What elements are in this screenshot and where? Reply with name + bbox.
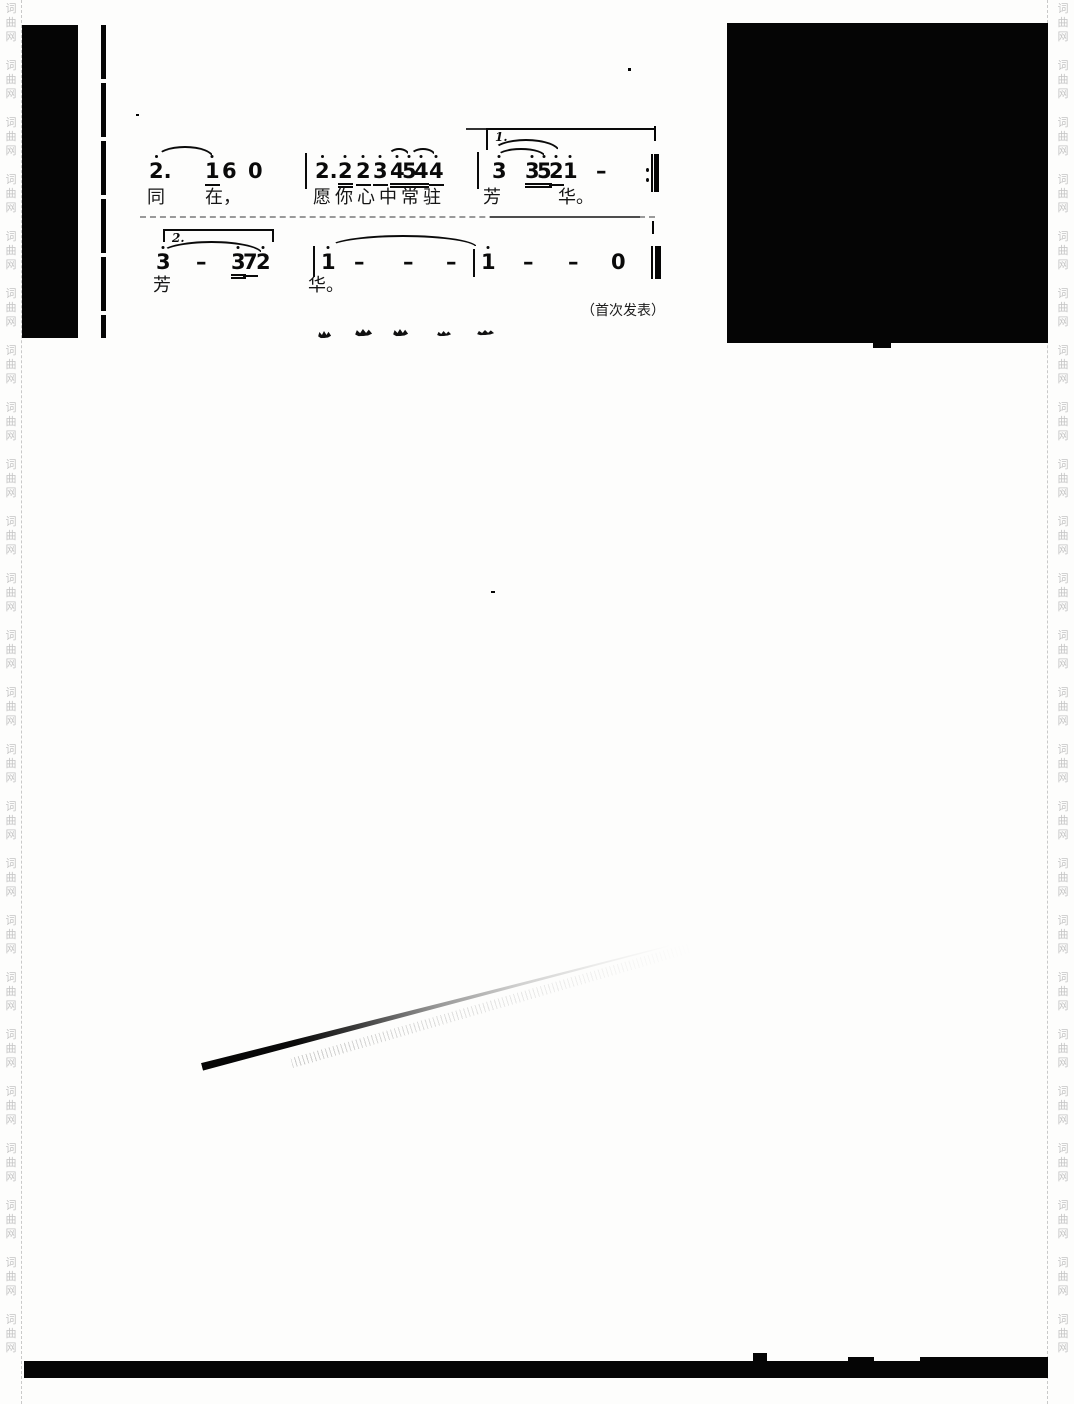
- slur-arc: [328, 235, 478, 248]
- watermark-char: 网: [1058, 1170, 1069, 1184]
- watermark-char: 词: [1058, 1028, 1069, 1042]
- final-barline-thin: [651, 154, 653, 192]
- jianpu-note: 1: [481, 252, 496, 273]
- barline: [305, 153, 307, 189]
- watermark-char: 网: [1058, 315, 1069, 329]
- note-digit: 2: [338, 161, 353, 188]
- watermark-char: 词: [1058, 857, 1069, 871]
- note-digit: –: [196, 252, 207, 273]
- watermark-char: 词: [1058, 2, 1069, 16]
- watermark-char: 曲: [6, 586, 17, 600]
- jianpu-note: –: [446, 252, 457, 273]
- watermark-char: 曲: [1058, 871, 1069, 885]
- watermark-char: 词: [1058, 458, 1069, 472]
- note-digit: 2: [356, 161, 371, 186]
- watermark-char: 网: [6, 1227, 17, 1241]
- watermark-char: 网: [1058, 942, 1069, 956]
- watermark-char: 词: [1058, 1313, 1069, 1327]
- watermark-char: 曲: [6, 358, 17, 372]
- watermark-char: 曲: [6, 928, 17, 942]
- watermark-char: 词: [6, 743, 17, 757]
- octave-dot: [487, 246, 490, 249]
- watermark-char: 网: [6, 1056, 17, 1070]
- diagonal-scratch-streak: [201, 941, 673, 1071]
- watermark-char: 曲: [1058, 1327, 1069, 1341]
- jianpu-note: –: [596, 161, 607, 182]
- watermark-char: 网: [6, 201, 17, 215]
- watermark-char: 网: [6, 144, 17, 158]
- jianpu-note: 0: [248, 161, 263, 182]
- watermark-char: 曲: [1058, 1042, 1069, 1056]
- watermark-char: 曲: [1058, 187, 1069, 201]
- note-digit: 0: [611, 252, 626, 273]
- note-digit: 3: [156, 252, 171, 273]
- watermark-char: 词: [1058, 287, 1069, 301]
- repeat-dot: [646, 168, 649, 172]
- watermark-char: 词: [6, 572, 17, 586]
- watermark-char: 网: [1058, 543, 1069, 557]
- octave-dot: [262, 246, 265, 249]
- right-black-block: [727, 23, 1048, 343]
- final-barline-thick: [654, 154, 659, 192]
- watermark-char: 曲: [6, 700, 17, 714]
- watermark-char: 曲: [1058, 73, 1069, 87]
- jianpu-note: 3: [492, 161, 507, 182]
- system-separator-dark-segment: [490, 216, 640, 218]
- watermark-char: 词: [1058, 914, 1069, 928]
- jianpu-note: 2: [338, 161, 353, 188]
- lyric-text: 愿你心中常驻: [313, 189, 445, 207]
- watermark-char: 网: [6, 942, 17, 956]
- scanned-sheet-music-page: 词曲网词曲网词曲网词曲网词曲网词曲网词曲网词曲网词曲网词曲网词曲网词曲网词曲网词…: [0, 0, 1074, 1404]
- watermark-char: 网: [6, 372, 17, 386]
- jianpu-note: –: [196, 252, 207, 273]
- octave-dot: [569, 155, 572, 158]
- watermark-char: 网: [6, 543, 17, 557]
- watermark-char: 曲: [6, 73, 17, 87]
- watermark-char: 曲: [1058, 700, 1069, 714]
- note-digit: 2.: [149, 161, 172, 182]
- note-digit: 0: [248, 161, 263, 182]
- watermark-char: 曲: [6, 187, 17, 201]
- jianpu-note: 4: [414, 161, 429, 188]
- watermark-char: 曲: [6, 1042, 17, 1056]
- left-thin-rule: [101, 25, 106, 338]
- watermark-char: 曲: [1058, 415, 1069, 429]
- watermark-char: 网: [6, 486, 17, 500]
- watermark-char: 网: [1058, 999, 1069, 1013]
- watermark-char: 曲: [1058, 301, 1069, 315]
- watermark-char: 网: [6, 429, 17, 443]
- watermark-char: 网: [6, 258, 17, 272]
- note-digit: 2.: [315, 161, 338, 182]
- bottom-bar-bump-2: [848, 1357, 874, 1362]
- lyric-text: 同: [147, 189, 165, 207]
- watermark-char: 词: [1058, 1085, 1069, 1099]
- note-digit: –: [568, 252, 579, 273]
- watermark-char: 曲: [1058, 1099, 1069, 1113]
- jianpu-note: 2: [549, 161, 564, 186]
- watermark-char: 网: [6, 1284, 17, 1298]
- watermark-char: 网: [1058, 30, 1069, 44]
- cropped-character-fragment-2: [355, 328, 372, 336]
- right-block-bottom-bump: [873, 342, 891, 348]
- watermark-char: 词: [1058, 629, 1069, 643]
- volta-line-lead: [466, 128, 488, 130]
- octave-dot: [362, 155, 365, 158]
- watermark-char: 网: [1058, 714, 1069, 728]
- lyric-text: 华。: [558, 189, 594, 207]
- slur-arc: [156, 146, 214, 158]
- watermark-char: 网: [6, 87, 17, 101]
- note-digit: 1: [481, 252, 496, 273]
- watermark-char: 曲: [6, 985, 17, 999]
- first-publication-note: （首次发表）: [581, 303, 665, 320]
- watermark-char: 网: [6, 600, 17, 614]
- watermark-char: 词: [1058, 743, 1069, 757]
- watermark-char: 词: [1058, 173, 1069, 187]
- jianpu-note: 4: [429, 161, 444, 186]
- watermark-char: 曲: [6, 643, 17, 657]
- note-digit: 2: [549, 161, 564, 186]
- watermark-char: 曲: [6, 871, 17, 885]
- lyric-text: 在，: [205, 189, 241, 207]
- watermark-char: 词: [6, 629, 17, 643]
- bottom-black-bar: [24, 1361, 1048, 1378]
- watermark-char: 网: [1058, 657, 1069, 671]
- jianpu-note: 2: [256, 252, 271, 273]
- watermark-char: 词: [1058, 59, 1069, 73]
- watermark-char: 词: [1058, 971, 1069, 985]
- note-digit: –: [446, 252, 457, 273]
- watermark-char: 网: [6, 771, 17, 785]
- watermark-char: 词: [6, 686, 17, 700]
- jianpu-note: 2.: [315, 161, 338, 182]
- watermark-char: 曲: [1058, 529, 1069, 543]
- watermark-char: 曲: [1058, 1270, 1069, 1284]
- watermark-char: 词: [6, 1028, 17, 1042]
- watermark-char: 曲: [1058, 643, 1069, 657]
- jianpu-note: 3: [156, 252, 171, 273]
- note-digit: –: [523, 252, 534, 273]
- watermark-char: 网: [1058, 1341, 1069, 1355]
- watermark-char: 曲: [1058, 16, 1069, 30]
- watermark-char: 曲: [1058, 358, 1069, 372]
- watermark-char: 词: [6, 1085, 17, 1099]
- note-digit: 6: [222, 161, 237, 182]
- speck-3: [136, 114, 139, 116]
- watermark-char: 词: [1058, 230, 1069, 244]
- watermark-char: 曲: [6, 1327, 17, 1341]
- watermark-char: 曲: [1058, 130, 1069, 144]
- cropped-character-fragment-4: [437, 331, 451, 337]
- watermark-column-right: 词曲网词曲网词曲网词曲网词曲网词曲网词曲网词曲网词曲网词曲网词曲网词曲网词曲网词…: [1054, 2, 1072, 1370]
- jianpu-note: 2.: [149, 161, 172, 182]
- watermark-char: 网: [6, 1113, 17, 1127]
- barline: [313, 246, 315, 277]
- watermark-char: 词: [1058, 515, 1069, 529]
- watermark-char: 网: [6, 1170, 17, 1184]
- slur-arc: [410, 148, 436, 156]
- note-digit: 2: [256, 252, 271, 273]
- watermark-char: 曲: [6, 16, 17, 30]
- watermark-char: 网: [6, 885, 17, 899]
- watermark-char: 曲: [6, 1213, 17, 1227]
- watermark-char: 网: [1058, 1113, 1069, 1127]
- diagonal-scratch-speckle: [287, 940, 704, 1068]
- jianpu-note: 1: [321, 252, 336, 273]
- watermark-char: 网: [6, 657, 17, 671]
- note-digit: 1: [563, 161, 578, 182]
- watermark-char: 曲: [6, 244, 17, 258]
- watermark-char: 网: [1058, 828, 1069, 842]
- watermark-char: 网: [1058, 885, 1069, 899]
- watermark-char: 词: [1058, 1199, 1069, 1213]
- watermark-char: 网: [1058, 144, 1069, 158]
- lyric-text: 芳: [153, 277, 171, 295]
- watermark-char: 词: [1058, 686, 1069, 700]
- watermark-char: 词: [1058, 572, 1069, 586]
- jianpu-note: –: [403, 252, 414, 273]
- watermark-char: 曲: [6, 757, 17, 771]
- watermark-char: 网: [6, 315, 17, 329]
- jianpu-note: 6: [222, 161, 237, 182]
- watermark-char: 词: [1058, 116, 1069, 130]
- cropped-character-fragment-3: [393, 328, 408, 336]
- watermark-char: 词: [1058, 344, 1069, 358]
- speck-1: [628, 68, 631, 71]
- left-black-block: [22, 25, 78, 338]
- jianpu-note: –: [568, 252, 579, 273]
- watermark-char: 词: [6, 971, 17, 985]
- watermark-char: 词: [6, 1313, 17, 1327]
- note-digit: 1: [321, 252, 336, 273]
- octave-dot: [379, 155, 382, 158]
- final-barline-thick: [655, 246, 661, 279]
- lyric-text: 芳: [483, 189, 501, 207]
- watermark-char: 曲: [1058, 244, 1069, 258]
- note-digit: 4: [429, 161, 444, 186]
- watermark-char: 曲: [6, 814, 17, 828]
- watermark-char: 词: [1058, 1142, 1069, 1156]
- slur-arc: [388, 148, 410, 156]
- watermark-char: 词: [6, 800, 17, 814]
- watermark-char: 网: [6, 714, 17, 728]
- note-digit: 1: [205, 161, 220, 186]
- jianpu-note: 1: [205, 161, 220, 186]
- watermark-char: 曲: [1058, 928, 1069, 942]
- watermark-char: 词: [6, 857, 17, 871]
- watermark-char: 网: [6, 999, 17, 1013]
- watermark-column-left: 词曲网词曲网词曲网词曲网词曲网词曲网词曲网词曲网词曲网词曲网词曲网词曲网词曲网词…: [2, 2, 20, 1370]
- watermark-char: 网: [1058, 87, 1069, 101]
- watermark-char: 网: [6, 30, 17, 44]
- watermark-char: 曲: [6, 529, 17, 543]
- watermark-char: 词: [1058, 401, 1069, 415]
- watermark-char: 曲: [1058, 1156, 1069, 1170]
- barline: [473, 249, 475, 277]
- watermark-char: 曲: [1058, 472, 1069, 486]
- watermark-char: 词: [6, 458, 17, 472]
- watermark-char: 曲: [6, 415, 17, 429]
- watermark-char: 词: [6, 230, 17, 244]
- watermark-char: 曲: [6, 1099, 17, 1113]
- watermark-char: 词: [6, 2, 17, 16]
- watermark-char: 曲: [1058, 985, 1069, 999]
- watermark-char: 词: [6, 1256, 17, 1270]
- bottom-bar-top-strip: [920, 1357, 1048, 1362]
- separator-right-tick: [652, 221, 654, 234]
- watermark-char: 网: [1058, 771, 1069, 785]
- watermark-char: 曲: [1058, 757, 1069, 771]
- jianpu-note: 1: [563, 161, 578, 182]
- note-digit: 3: [492, 161, 507, 182]
- watermark-char: 网: [1058, 600, 1069, 614]
- watermark-char: 词: [6, 1199, 17, 1213]
- cropped-character-fragment-5: [477, 329, 494, 335]
- watermark-char: 网: [1058, 201, 1069, 215]
- watermark-char: 词: [6, 59, 17, 73]
- watermark-char: 词: [1058, 800, 1069, 814]
- watermark-char: 网: [1058, 1284, 1069, 1298]
- octave-dot: [344, 155, 347, 158]
- jianpu-note: –: [523, 252, 534, 273]
- octave-dot: [321, 155, 324, 158]
- watermark-char: 词: [6, 344, 17, 358]
- watermark-char: 曲: [6, 130, 17, 144]
- watermark-char: 词: [6, 116, 17, 130]
- note-digit: 4: [414, 161, 429, 188]
- speck-2: [491, 591, 495, 593]
- jianpu-note: 0: [611, 252, 626, 273]
- jianpu-note: –: [354, 252, 365, 273]
- note-digit: –: [403, 252, 414, 273]
- note-digit: 3: [373, 161, 388, 186]
- jianpu-note: 3: [373, 161, 388, 186]
- bottom-bar-bump-1: [753, 1353, 767, 1362]
- watermark-char: 词: [6, 515, 17, 529]
- watermark-char: 网: [1058, 1056, 1069, 1070]
- watermark-char: 词: [1058, 1256, 1069, 1270]
- watermark-char: 网: [1058, 429, 1069, 443]
- lyric-text: 华。: [308, 277, 344, 295]
- jianpu-note: 2: [356, 161, 371, 186]
- watermark-char: 网: [1058, 486, 1069, 500]
- watermark-char: 词: [6, 914, 17, 928]
- watermark-char: 网: [1058, 1227, 1069, 1241]
- watermark-char: 曲: [6, 1156, 17, 1170]
- watermark-char: 词: [6, 173, 17, 187]
- cropped-character-fragment-1: [318, 331, 331, 339]
- watermark-char: 曲: [1058, 814, 1069, 828]
- volta-bracket-2: 2.: [163, 229, 274, 242]
- repeat-dot: [646, 178, 649, 182]
- watermark-char: 词: [6, 1142, 17, 1156]
- watermark-char: 曲: [6, 301, 17, 315]
- barline: [477, 152, 479, 189]
- watermark-char: 词: [6, 287, 17, 301]
- watermark-char: 曲: [1058, 586, 1069, 600]
- note-digit: –: [596, 161, 607, 182]
- watermark-char: 曲: [6, 1270, 17, 1284]
- watermark-char: 曲: [6, 472, 17, 486]
- octave-dot: [555, 155, 558, 158]
- final-barline-thin: [651, 246, 653, 279]
- watermark-char: 网: [6, 828, 17, 842]
- note-digit: –: [354, 252, 365, 273]
- watermark-char: 网: [1058, 258, 1069, 272]
- watermark-char: 网: [1058, 372, 1069, 386]
- watermark-char: 词: [6, 401, 17, 415]
- watermark-char: 曲: [1058, 1213, 1069, 1227]
- watermark-char: 网: [6, 1341, 17, 1355]
